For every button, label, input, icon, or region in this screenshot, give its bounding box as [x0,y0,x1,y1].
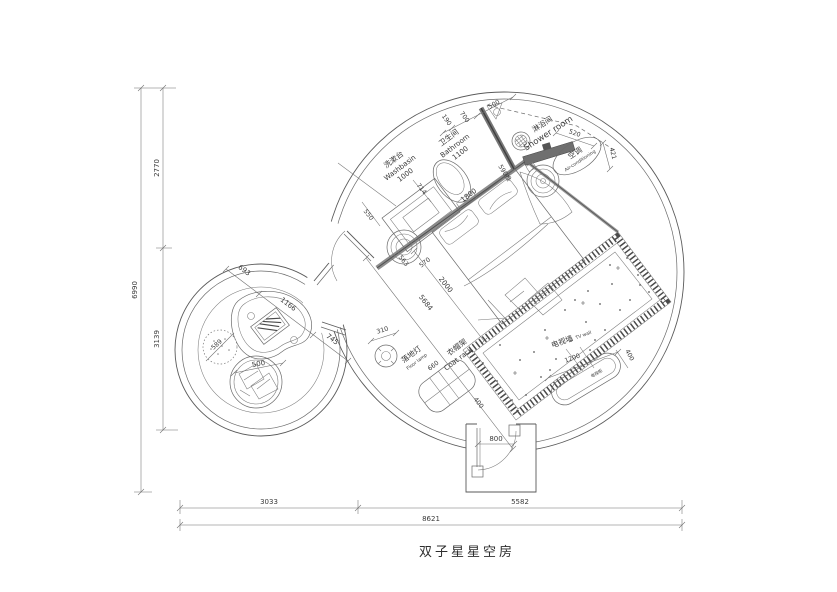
sliding-door-leaf [481,108,514,169]
dim-tv-width: 400 [623,348,635,362]
pouf [203,330,237,364]
dim-upper-height: 2770 [153,159,161,177]
desk-cup-1 [248,313,255,320]
bottom-dimensions: 3033 5582 8621 [177,498,685,531]
door-leaf [347,231,374,258]
tv-wall-label-zh: 电视墙 [550,332,575,349]
dim-lounge-3: 745 [324,332,339,346]
platform-tick-border [469,237,666,414]
blanket-fold-edge [464,217,551,286]
fan-coil-unit [526,162,559,197]
dim-550: 550 [362,208,375,222]
duvet-drape [520,172,572,224]
bed [432,169,585,324]
dim-bottom-left: 3033 [260,498,278,506]
dim-diagonal: 5684 [417,293,435,312]
dim-rack-width: 400 [472,396,485,410]
partition-walls [377,108,618,268]
washbasin-label: 洗漱台 Washbasin 1000 [375,144,422,190]
bed-outline [432,169,585,324]
dim-bottom-right: 5582 [511,498,529,506]
dim-total-height: 6990 [131,281,139,299]
floorplan-drawing: 空调 Air-conditioning 电视柜 [0,0,837,592]
left-dimensions: 6990 2770 3139 [131,85,178,495]
desk-device [251,308,290,345]
dim-714: 714 [415,182,428,196]
tv-cabinet-label: 电视柜 [589,367,603,379]
dim-side-table-b: 570 [418,256,432,269]
dim-lamp: 310 [376,325,390,335]
dim-lounge-1: 693 [236,263,251,277]
dim-total-width: 8621 [422,515,440,523]
plan-title: 双子星星空房 [419,544,515,560]
dim-side-table-a: 563 [397,254,410,268]
dim-entry-door: 800 [489,435,502,443]
dim-190: 190 [440,113,453,127]
dim-520: 520 [568,128,582,139]
dim-421: 421 [608,147,618,160]
dim-lower-height: 3139 [153,330,161,348]
tv-cabinet: 电视柜 [547,348,626,409]
dim-700: 700 [458,110,471,124]
bathroom-label: 卫生间 Bathroom 1100 [432,123,477,167]
floor-lamp-annot: 310 落地灯 Floor lamp [368,325,429,371]
pillow-left [438,208,481,246]
dim-chair: 500 [251,359,266,369]
entrance: 800 [466,424,536,492]
floorplan-canvas: 空调 Air-conditioning 电视柜 [0,0,837,592]
tv-wall-label-en: TV wall [574,330,593,342]
floor-lamp [375,345,397,367]
dim-rack-length: 660 [427,360,441,373]
